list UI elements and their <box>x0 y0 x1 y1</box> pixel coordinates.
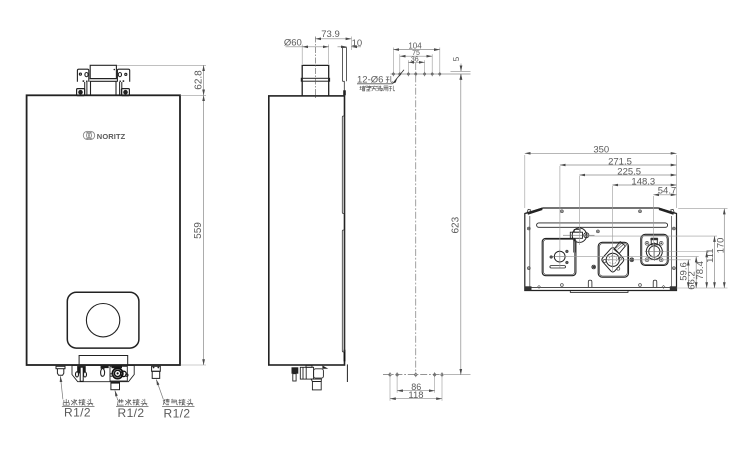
svg-text:NORITZ: NORITZ <box>97 132 126 141</box>
svg-text:148.3: 148.3 <box>631 176 655 187</box>
svg-text:559: 559 <box>193 222 204 239</box>
svg-text:5: 5 <box>452 56 461 61</box>
svg-text:Ø60: Ø60 <box>284 38 302 49</box>
svg-text:R1/2: R1/2 <box>64 406 91 420</box>
svg-text:36: 36 <box>411 56 419 63</box>
svg-text:350: 350 <box>593 145 609 156</box>
svg-text:10: 10 <box>352 38 363 49</box>
svg-text:118: 118 <box>408 390 423 401</box>
svg-text:104: 104 <box>408 41 422 50</box>
svg-text:59.6: 59.6 <box>679 262 690 281</box>
svg-text:62.8: 62.8 <box>193 70 204 90</box>
svg-text:54.7: 54.7 <box>658 185 677 196</box>
svg-text:R1/2: R1/2 <box>164 407 191 421</box>
svg-text:170: 170 <box>716 238 727 254</box>
svg-text:R1/2: R1/2 <box>118 406 145 420</box>
svg-text:623: 623 <box>451 216 462 233</box>
svg-text:73.9: 73.9 <box>321 29 340 40</box>
